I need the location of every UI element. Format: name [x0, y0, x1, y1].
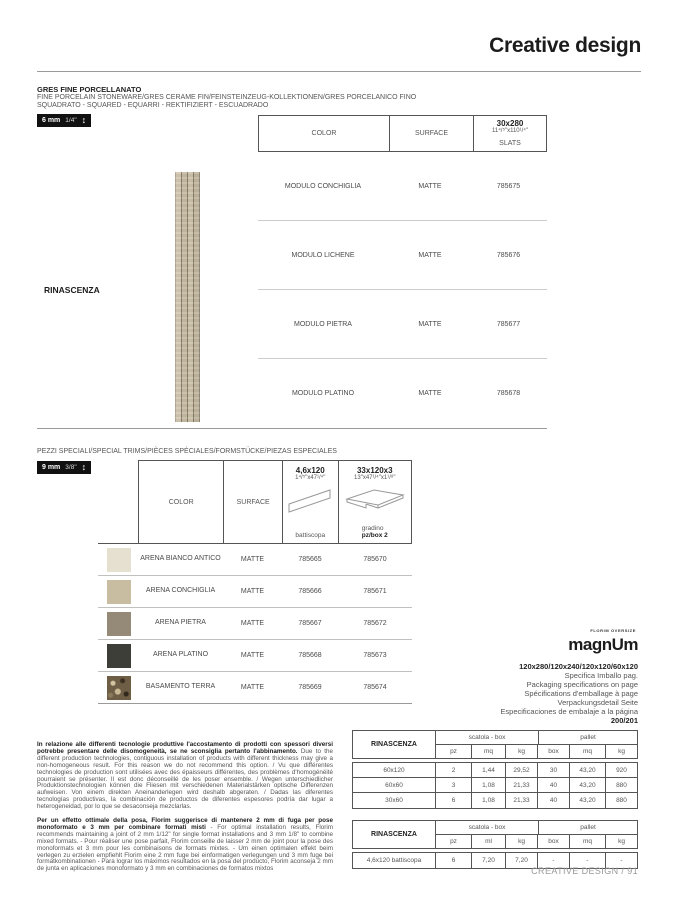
section1-subtitle2: SQUADRATO - SQUARED - EQUARRI - REKTIFIZ…: [37, 102, 268, 109]
thickness-mm: 6 mm: [42, 117, 60, 124]
value-mq: 1,08: [472, 778, 506, 792]
packing-series-label: RINASCENZA: [353, 731, 436, 758]
column-header-surface: SURFACE: [389, 116, 473, 151]
value-ml: 7,20: [472, 853, 506, 868]
size-inches: 1⁴/⁵"x47¹/⁴": [295, 475, 325, 481]
value-box: 40: [538, 793, 570, 808]
thickness-note: In relazione alle differenti tecnologie …: [37, 742, 333, 811]
product-surface: MATTE: [388, 321, 472, 328]
subheader-box: box: [538, 835, 570, 848]
color-swatch: [107, 580, 131, 604]
color-swatch: [107, 676, 131, 700]
header-divider: [37, 71, 641, 72]
product-surface: MATTE: [223, 684, 282, 691]
value-mq: 43,20: [570, 793, 606, 808]
product-code-gradino: 785673: [338, 652, 412, 659]
product-color-name: ARENA BIANCO ANTICO: [138, 555, 223, 564]
magnum-brand-text: magnUm: [568, 635, 638, 654]
table-row: MODULO PIETRA MATTE 785677: [258, 290, 547, 359]
slats-table-rows: MODULO CONCHIGLIA MATTE 785675 MODULO LI…: [258, 152, 547, 428]
subheader-kg: kg: [506, 745, 538, 758]
format-label: 60x120: [353, 763, 436, 777]
slats-table-header: COLOR SURFACE 30x280 11⁴/⁵"x110¹/⁴" SLAT…: [258, 115, 547, 152]
trims-table-header: COLOR SURFACE 4,6x120 1⁴/⁵"x47¹/⁴" batti…: [138, 460, 412, 543]
size-label: 33x120x3: [357, 466, 393, 475]
battiscopa-caption: battiscopa: [295, 532, 325, 539]
packaging-note-en: Packaging specifications on page: [500, 680, 638, 689]
size-label: 4,6x120: [296, 466, 325, 475]
column-header-color: COLOR: [139, 461, 223, 543]
table-row: ARENA CONCHIGLIA MATTE 785666 785671: [98, 576, 412, 608]
packaging-pages: 200/201: [500, 716, 638, 725]
value-pz: 6: [436, 793, 472, 808]
packing-table-battiscopa: RINASCENZA scatola - box pallet pz ml kg…: [352, 820, 638, 869]
series-name: RINASCENZA: [44, 285, 100, 295]
product-surface: MATTE: [223, 588, 282, 595]
value-kg: 880: [606, 793, 637, 808]
product-surface: MATTE: [223, 556, 282, 563]
product-surface: MATTE: [223, 652, 282, 659]
value-kg: 21,33: [506, 793, 538, 808]
subheader-kg: kg: [606, 835, 637, 848]
value-kg: 21,33: [506, 778, 538, 792]
packaging-note-de: Verpackungsdetail Seite: [500, 698, 638, 707]
swatch-cell: [98, 612, 138, 636]
subheader-pz: pz: [436, 835, 472, 848]
subheader-kg: kg: [606, 745, 637, 758]
product-code-gradino: 785674: [338, 684, 412, 691]
group-pallet-label: pallet: [539, 731, 637, 744]
packing-group-row: scatola - box pallet: [436, 821, 637, 835]
packaging-note-es: Especificaciones de embalaje a la página: [500, 707, 638, 716]
product-code-gradino: 785672: [338, 620, 412, 627]
packaging-note-it: Specifica Imballo pag.: [500, 671, 638, 680]
trims-table-rows: ARENA BIANCO ANTICO MATTE 785665 785670 …: [98, 544, 412, 704]
product-color-name: MODULO PLATINO: [258, 390, 388, 397]
product-surface: MATTE: [223, 620, 282, 627]
column-header-color: COLOR: [259, 116, 389, 151]
packing-row: 30x60 6 1,08 21,33 40 43,20 880: [353, 793, 637, 808]
format-label: 30x60: [353, 793, 436, 808]
packing-header-columns: scatola - box pallet pz ml kg box mq kg: [436, 821, 637, 848]
value-pz: 6: [436, 853, 472, 868]
product-code-battiscopa: 785669: [282, 684, 338, 691]
product-color-name: ARENA PIETRA: [138, 619, 223, 628]
packing-table-header: RINASCENZA scatola - box pallet pz ml kg…: [352, 820, 638, 849]
group-box-label: scatola - box: [436, 731, 539, 744]
thickness-mm: 9 mm: [42, 464, 60, 471]
product-surface: MATTE: [388, 183, 472, 190]
section1-subtitle: FINE PORCELAIN STONEWARE/GRES CERAME FIN…: [37, 94, 416, 101]
packaging-note-fr: Spécifications d'emballage à page: [500, 689, 638, 698]
value-kg: 920: [606, 763, 637, 777]
group-pallet-label: pallet: [539, 821, 637, 834]
value-mq: 43,20: [570, 778, 606, 792]
value-box: 40: [538, 778, 570, 792]
subheader-ml: ml: [472, 835, 506, 848]
thickness-arrow-icon: ↕: [82, 116, 87, 125]
packing-subheader-row: pz ml kg box mq kg: [436, 835, 637, 848]
section2-title: PEZZI SPECIALI/SPECIAL TRIMS/PIÈCES SPÉC…: [37, 448, 337, 455]
product-code-battiscopa: 785668: [282, 652, 338, 659]
thickness-badge-6mm: 6 mm 1/4" ↕: [37, 114, 91, 127]
subheader-mq: mq: [472, 745, 506, 758]
page-title: Creative design: [489, 34, 641, 58]
product-surface: MATTE: [388, 252, 472, 259]
subheader-pz: pz: [436, 745, 472, 758]
slats-table-bottom-border: [37, 428, 547, 429]
magnum-info-block: FLORIM OVERSIZE magnUm 120x280/120x240/1…: [500, 619, 638, 725]
joint-note: Per un effetto ottimale della posa, Flor…: [37, 818, 333, 873]
column-header-surface: SURFACE: [223, 461, 282, 543]
page-footer: CREATIVE DESIGN / 91: [531, 866, 638, 876]
column-header-size: 30x280 11⁴/⁵"x110¹/⁴" SLATS: [473, 116, 546, 151]
subheader-mq: mq: [570, 835, 606, 848]
table-row: MODULO CONCHIGLIA MATTE 785675: [258, 152, 547, 221]
value-pz: 2: [436, 763, 472, 777]
value-mq: 43,20: [570, 763, 606, 777]
thickness-arrow-icon: ↕: [82, 463, 87, 472]
value-mq: 1,08: [472, 793, 506, 808]
packing-row: 60x120 2 1,44 29,52 30 43,20 920: [353, 763, 637, 778]
table-row: MODULO LICHENE MATTE 785676: [258, 221, 547, 290]
thickness-inch: 1/4": [65, 117, 76, 124]
product-code-gradino: 785670: [338, 556, 412, 563]
florim-oversize-label: FLORIM OVERSIZE: [590, 628, 636, 633]
product-color-name: MODULO CONCHIGLIA: [258, 183, 388, 190]
color-swatch: [107, 548, 131, 572]
thickness-inch: 3/8": [65, 464, 76, 471]
column-header-gradino: 33x120x3 13"x47¹/⁴"x1¹/⁸" gradinopz/box …: [338, 461, 411, 543]
product-color-name: BASAMENTO TERRA: [138, 683, 223, 692]
product-code-battiscopa: 785665: [282, 556, 338, 563]
swatch-cell: [98, 676, 138, 700]
subheader-kg: kg: [506, 835, 538, 848]
table-row: ARENA PLATINO MATTE 785668 785673: [98, 640, 412, 672]
product-color-name: ARENA CONCHIGLIA: [138, 587, 223, 596]
table-row: ARENA BIANCO ANTICO MATTE 785665 785670: [98, 544, 412, 576]
section1-title: GRES FINE PORCELLANATO: [37, 85, 141, 94]
product-code: 785676: [472, 252, 545, 259]
product-surface: MATTE: [388, 390, 472, 397]
product-color-name: MODULO PIETRA: [258, 321, 388, 328]
table-row: MODULO PLATINO MATTE 785678: [258, 359, 547, 428]
value-kg: 29,52: [506, 763, 538, 777]
subheader-mq: mq: [570, 745, 606, 758]
swatch-cell: [98, 548, 138, 572]
size-label: 30x280: [497, 119, 524, 128]
product-code-battiscopa: 785666: [282, 588, 338, 595]
column-header-battiscopa: 4,6x120 1⁴/⁵"x47¹/⁴" battiscopa: [282, 461, 338, 543]
color-swatch: [107, 644, 131, 668]
group-box-label: scatola - box: [436, 821, 539, 834]
size-inches: 11⁴/⁵"x110¹/⁴": [492, 128, 528, 134]
magnum-formats: 120x280/120x240/120x120/60x120: [500, 662, 638, 671]
product-code: 785678: [472, 390, 545, 397]
swatch-cell: [98, 644, 138, 668]
catalog-page: Creative design GRES FINE PORCELLANATO F…: [0, 0, 678, 904]
magnum-logo: FLORIM OVERSIZE magnUm: [500, 619, 638, 655]
value-mq: 1,44: [472, 763, 506, 777]
packing-table-header: RINASCENZA scatola - box pallet pz mq kg…: [352, 730, 638, 759]
color-swatch: [107, 612, 131, 636]
packing-subheader-row: pz mq kg box mq kg: [436, 745, 637, 758]
thickness-badge-9mm: 9 mm 3/8" ↕: [37, 461, 91, 474]
product-color-name: MODULO LICHENE: [258, 252, 388, 259]
tile-slat-image: [175, 172, 200, 422]
packing-series-label: RINASCENZA: [353, 821, 436, 848]
packing-row: 60x60 3 1,08 21,33 40 43,20 880: [353, 778, 637, 793]
size-sub-label: SLATS: [499, 140, 521, 147]
product-code: 785677: [472, 321, 545, 328]
format-label: 4,6x120 battiscopa: [353, 853, 436, 868]
value-kg: 880: [606, 778, 637, 792]
gradino-step-icon: [344, 487, 406, 511]
swatch-cell: [98, 580, 138, 604]
packing-header-columns: scatola - box pallet pz mq kg box mq kg: [436, 731, 637, 758]
packing-group-row: scatola - box pallet: [436, 731, 637, 745]
product-code-battiscopa: 785667: [282, 620, 338, 627]
product-code: 785675: [472, 183, 545, 190]
value-box: 30: [538, 763, 570, 777]
product-code-gradino: 785671: [338, 588, 412, 595]
table-row: ARENA PIETRA MATTE 785667 785672: [98, 608, 412, 640]
subheader-box: box: [538, 745, 570, 758]
value-pz: 3: [436, 778, 472, 792]
product-color-name: ARENA PLATINO: [138, 651, 223, 660]
battiscopa-profile-icon: [287, 487, 333, 513]
size-inches: 13"x47¹/⁴"x1¹/⁸": [354, 475, 396, 481]
packing-table-body: 60x120 2 1,44 29,52 30 43,20 920 60x60 3…: [352, 762, 638, 809]
format-label: 60x60: [353, 778, 436, 792]
packing-table-rinascenza: RINASCENZA scatola - box pallet pz mq kg…: [352, 730, 638, 809]
gradino-caption: gradinopz/box 2: [362, 525, 388, 539]
table-row: BASAMENTO TERRA MATTE 785669 785674: [98, 672, 412, 704]
